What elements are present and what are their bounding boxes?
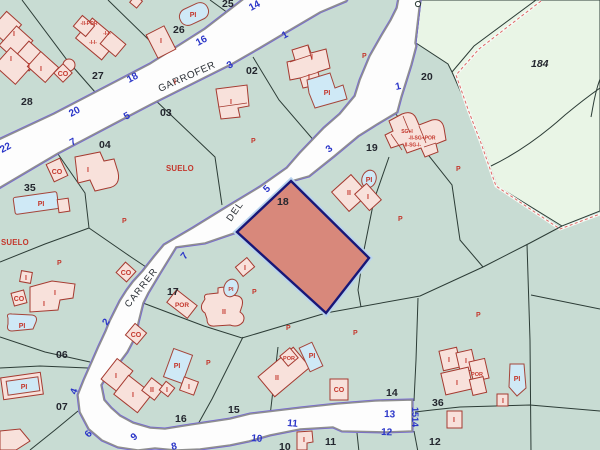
svg-text:P: P — [252, 289, 257, 296]
svg-text:II: II — [275, 375, 279, 382]
svg-text:35: 35 — [24, 182, 36, 194]
svg-text:36: 36 — [432, 397, 444, 409]
svg-text:-I-I-: -I-I- — [103, 31, 111, 37]
svg-text:02: 02 — [246, 65, 258, 77]
svg-text:-II-POR: -II-POR — [81, 21, 98, 27]
svg-text:P: P — [398, 216, 403, 223]
svg-text:04: 04 — [99, 139, 111, 151]
svg-text:I: I — [115, 373, 117, 380]
svg-text:27: 27 — [92, 70, 104, 82]
svg-text:14: 14 — [386, 387, 398, 399]
svg-text:07: 07 — [56, 401, 68, 413]
svg-text:PI: PI — [190, 12, 197, 19]
svg-text:11: 11 — [325, 436, 336, 448]
svg-text:I: I — [448, 357, 450, 364]
svg-text:28: 28 — [21, 96, 33, 108]
svg-text:POR: POR — [471, 372, 483, 378]
svg-text:16: 16 — [175, 413, 187, 425]
svg-text:I: I — [28, 63, 30, 70]
svg-text:I: I — [456, 380, 458, 387]
svg-text:I: I — [166, 387, 168, 394]
svg-text:I: I — [311, 54, 313, 61]
svg-text:POR: POR — [175, 302, 189, 309]
svg-text:I: I — [502, 398, 504, 405]
svg-text:I: I — [43, 301, 45, 308]
svg-text:19: 19 — [366, 142, 378, 154]
svg-text:20: 20 — [421, 71, 433, 83]
svg-text:-II-SG+POR: -II-SG+POR — [408, 136, 435, 142]
svg-text:15: 15 — [228, 404, 240, 416]
svg-text:13: 13 — [384, 409, 396, 420]
svg-text:-II-SG-I-: -II-SG-I- — [403, 143, 421, 149]
svg-text:II: II — [347, 190, 351, 197]
svg-text:10: 10 — [251, 433, 263, 445]
svg-text:II: II — [150, 387, 154, 394]
svg-text:10: 10 — [279, 441, 291, 450]
svg-text:P: P — [122, 218, 127, 225]
svg-text:PI: PI — [174, 363, 181, 370]
svg-text:I: I — [230, 99, 232, 106]
svg-text:03: 03 — [160, 107, 172, 119]
svg-text:P: P — [286, 325, 291, 332]
svg-text:11: 11 — [287, 418, 299, 430]
svg-text:CO: CO — [14, 296, 25, 303]
svg-text:I: I — [453, 417, 455, 424]
svg-text:184: 184 — [531, 58, 549, 70]
svg-text:I: I — [174, 79, 176, 86]
svg-text:P: P — [251, 138, 256, 145]
svg-text:PI: PI — [366, 177, 373, 184]
svg-text:P: P — [206, 360, 211, 367]
svg-text:P: P — [456, 166, 461, 173]
svg-text:12: 12 — [429, 436, 441, 448]
svg-text:PI: PI — [309, 353, 316, 360]
svg-text:CO: CO — [52, 169, 63, 176]
svg-text:P: P — [353, 330, 358, 337]
svg-text:26: 26 — [173, 24, 185, 36]
svg-text:I: I — [87, 167, 89, 174]
svg-text:SUELO: SUELO — [166, 164, 194, 173]
svg-text:18: 18 — [277, 196, 289, 208]
svg-text:CO: CO — [334, 387, 345, 394]
svg-text:I: I — [160, 38, 162, 45]
svg-text:CO: CO — [121, 270, 132, 277]
svg-text:PI: PI — [228, 287, 234, 293]
svg-text:CO: CO — [58, 71, 69, 78]
svg-text:SUELO: SUELO — [1, 238, 29, 247]
svg-text:P: P — [57, 260, 62, 267]
svg-text:I: I — [132, 392, 134, 399]
svg-text:POR: POR — [283, 356, 295, 362]
svg-text:I: I — [54, 290, 56, 297]
svg-text:PI: PI — [38, 201, 45, 208]
svg-text:I: I — [188, 384, 190, 391]
svg-text:I: I — [25, 275, 27, 282]
svg-text:I: I — [13, 31, 15, 38]
svg-text:12: 12 — [381, 427, 393, 438]
svg-text:PI: PI — [324, 90, 331, 97]
svg-text:I: I — [244, 265, 246, 272]
svg-text:25: 25 — [222, 0, 234, 10]
svg-text:PI: PI — [514, 376, 521, 383]
svg-text:I: I — [308, 74, 310, 81]
svg-text:I: I — [465, 358, 467, 365]
svg-text:P: P — [362, 53, 367, 60]
svg-text:PI: PI — [21, 384, 28, 391]
svg-text:06: 06 — [56, 349, 68, 361]
svg-text:CO: CO — [131, 332, 142, 339]
svg-text:I: I — [10, 56, 12, 63]
svg-text:1514: 1514 — [410, 407, 420, 427]
svg-text:-I-I-: -I-I- — [89, 40, 97, 46]
svg-text:17: 17 — [167, 286, 179, 298]
svg-text:I: I — [367, 194, 369, 201]
svg-text:P: P — [476, 312, 481, 319]
svg-text:PI: PI — [19, 323, 26, 330]
svg-text:I: I — [40, 66, 42, 73]
svg-text:SG+I: SG+I — [401, 129, 413, 135]
svg-text:II: II — [222, 309, 226, 316]
svg-text:I: I — [303, 437, 305, 444]
